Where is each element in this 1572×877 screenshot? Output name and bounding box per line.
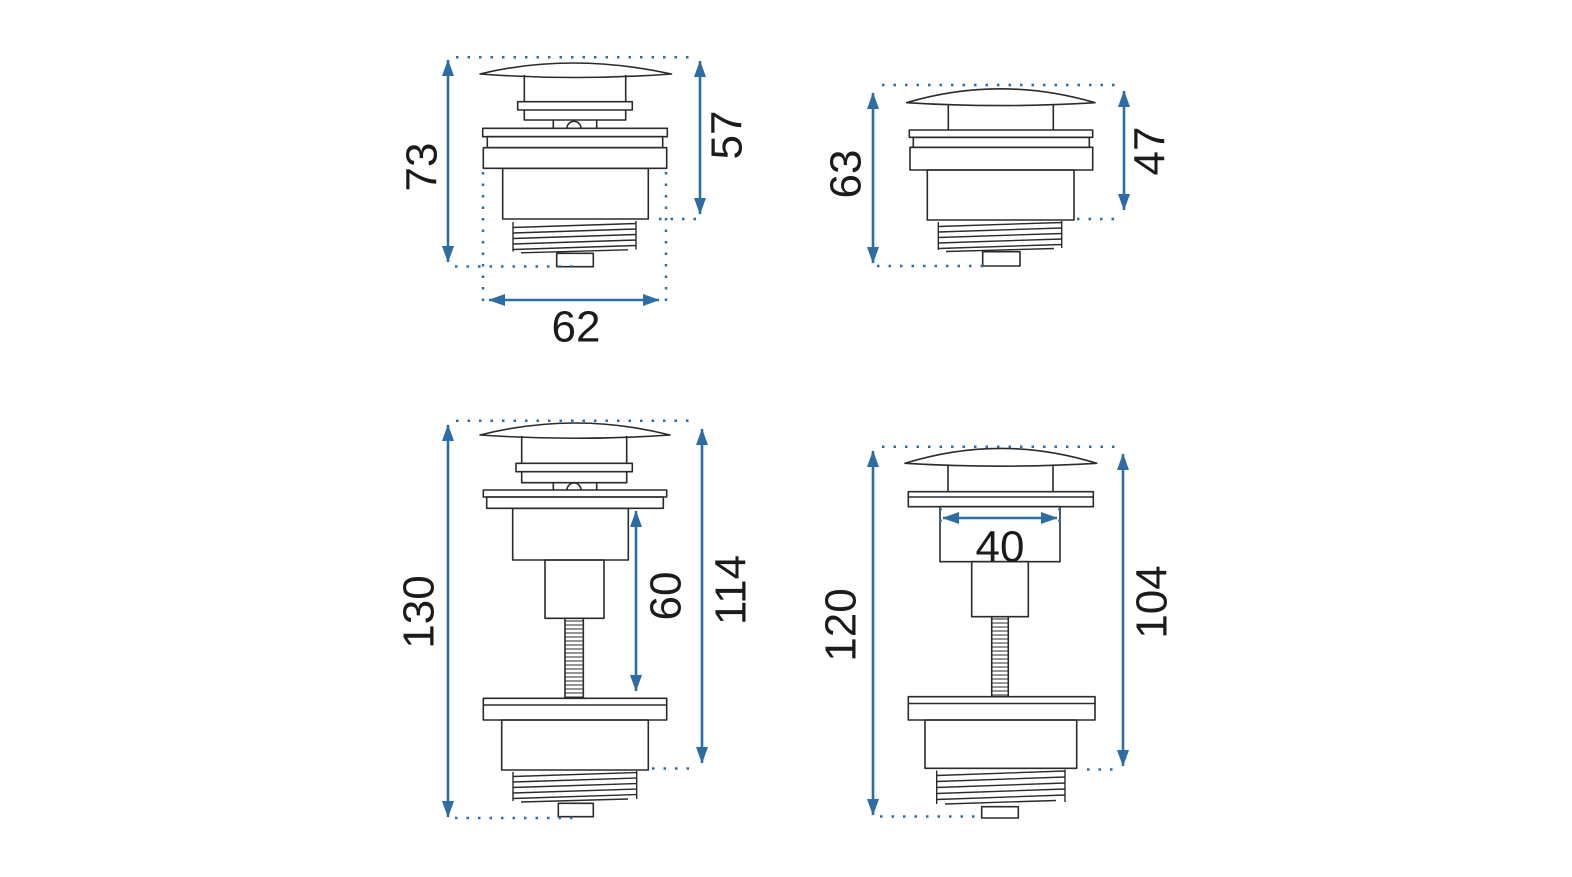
flange-band [487,497,664,508]
outer-thread-section [937,770,1065,805]
lower-body [925,720,1077,768]
dim-label-height-body: 57 [703,111,752,160]
top-flange-plate [909,130,1092,137]
dome-cap [480,423,670,438]
outer-thread-section [513,771,637,802]
threaded-rod-edges [992,617,1009,697]
flange-lip [483,148,666,169]
diagram-tall-drain-bottom-right: 120 40 104 [817,447,1177,818]
cap-neck-lower [522,472,627,483]
technical-drawing-canvas: 73 57 62 63 47 [0,0,1572,877]
dim-label-height-body: 47 [1126,127,1175,176]
cap-neck [948,465,1053,492]
diagram-tall-drain-bottom-left: 130 60 114 [395,421,756,818]
cap-stem [553,483,596,490]
threaded-rod-hatch [992,619,1008,695]
drain-body [503,168,649,219]
flange-band [487,137,662,148]
dome-cap [907,89,1095,106]
lower-body [502,720,649,770]
drain-body [927,170,1074,220]
dim-label-rod-length: 60 [642,572,691,621]
cap-neck [524,76,625,102]
cap-neck [948,105,1053,131]
cap-neck [522,437,627,464]
dim-label-height-body: 114 [707,555,756,625]
top-flange-plate [908,492,1093,507]
bottom-tab [983,252,1020,266]
outer-thread-section [513,221,636,253]
upper-body [513,508,629,560]
cap-flange-ring [516,463,632,471]
cap-stem [553,120,596,128]
dim-label-height-total: 120 [817,588,866,661]
top-flange-plate [483,490,666,497]
cap-flange-ring [518,102,633,110]
flange-lip [910,147,1093,170]
diagram-short-drain-top-right: 63 47 [822,85,1175,266]
stem-block [545,560,604,618]
bottom-tab [557,253,594,266]
dim-label-height-total: 73 [398,143,447,192]
dim-label-height-total: 130 [395,575,444,648]
bottom-tab [558,803,593,816]
dim-label-width-total: 62 [552,303,601,352]
threaded-rod-hatch [566,621,584,697]
dome-cap [905,448,1097,466]
dim-label-height-total: 63 [822,150,871,199]
dim-label-height-body: 104 [1128,565,1177,638]
lower-flange-plate [908,697,1095,720]
dim-label-cap-width: 40 [976,523,1025,572]
outer-thread-section [938,221,1061,252]
diagram-short-drain-top-left: 73 57 62 [398,57,752,351]
flange-band [913,137,1089,147]
threaded-rod-edges [565,618,583,698]
cap-neck-lower [524,110,625,120]
dome-cap [480,63,672,78]
bottom-tab [982,807,1019,818]
drain-dimensions-diagram: 73 57 62 63 47 [0,0,1572,877]
lower-flange-plate [483,698,666,720]
top-flange-plate [483,128,668,136]
